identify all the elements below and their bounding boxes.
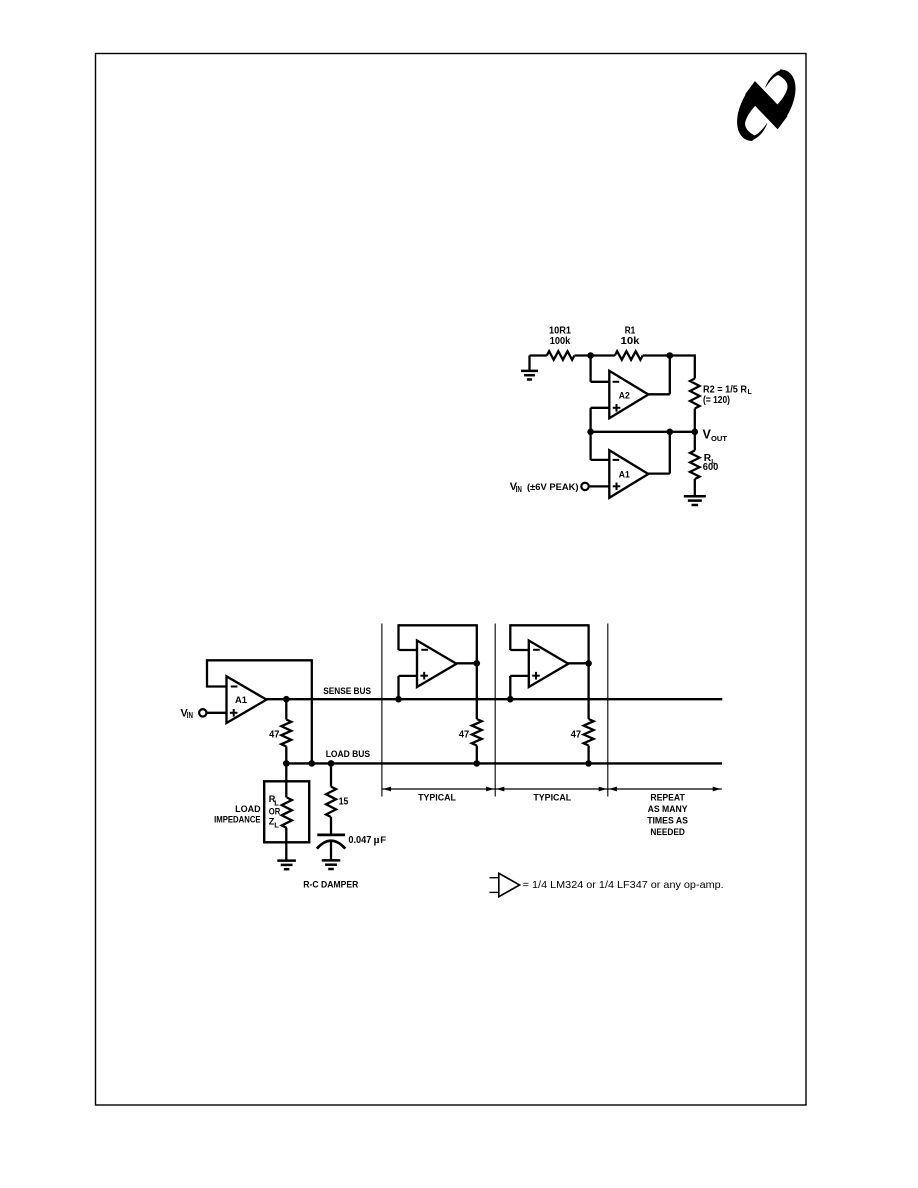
svg-text:L: L: [748, 389, 753, 396]
svg-text:SENSE BUS: SENSE BUS: [323, 686, 371, 696]
svg-text:AS MANY: AS MANY: [648, 804, 688, 814]
svg-text:(±6V PEAK): (±6V PEAK): [527, 482, 579, 493]
svg-text:µ: µ: [374, 835, 380, 846]
svg-text:A2: A2: [619, 390, 630, 401]
svg-text:15: 15: [339, 796, 349, 807]
svg-text:TYPICAL: TYPICAL: [418, 792, 456, 802]
svg-text:47: 47: [269, 730, 280, 741]
svg-text:OUT: OUT: [711, 434, 727, 443]
svg-text:LOAD: LOAD: [235, 804, 261, 814]
svg-text:IN: IN: [187, 711, 193, 720]
svg-text:600: 600: [703, 462, 719, 473]
svg-text:L: L: [274, 821, 279, 830]
svg-text:R1: R1: [625, 325, 636, 336]
svg-text:100k: 100k: [550, 336, 571, 347]
svg-text:IMPEDANCE: IMPEDANCE: [214, 814, 261, 824]
svg-text:NEEDED: NEEDED: [650, 827, 685, 837]
svg-text:OR: OR: [269, 807, 281, 817]
svg-text:10R1: 10R1: [549, 325, 571, 336]
svg-text:= 1/4 LM324 or 1/4 LF347 or an: = 1/4 LM324 or 1/4 LF347 or any op-amp.: [523, 880, 724, 891]
svg-text:A1: A1: [619, 470, 631, 481]
svg-text:(= 120): (= 120): [703, 395, 730, 406]
svg-text:R-C DAMPER: R-C DAMPER: [303, 879, 358, 889]
svg-text:A1: A1: [235, 695, 248, 706]
svg-text:LOAD BUS: LOAD BUS: [326, 749, 370, 759]
svg-text:47: 47: [459, 730, 470, 741]
svg-text:0.047: 0.047: [348, 835, 371, 846]
svg-text:TYPICAL: TYPICAL: [533, 792, 571, 802]
svg-text:TIMES AS: TIMES AS: [647, 815, 688, 825]
svg-text:R2 = 1/5 R: R2 = 1/5 R: [703, 384, 748, 395]
svg-text:10k: 10k: [621, 336, 640, 347]
svg-text:IN: IN: [516, 485, 522, 494]
svg-text:F: F: [380, 835, 386, 846]
svg-text:47: 47: [571, 730, 582, 741]
svg-text:REPEAT: REPEAT: [650, 792, 685, 802]
